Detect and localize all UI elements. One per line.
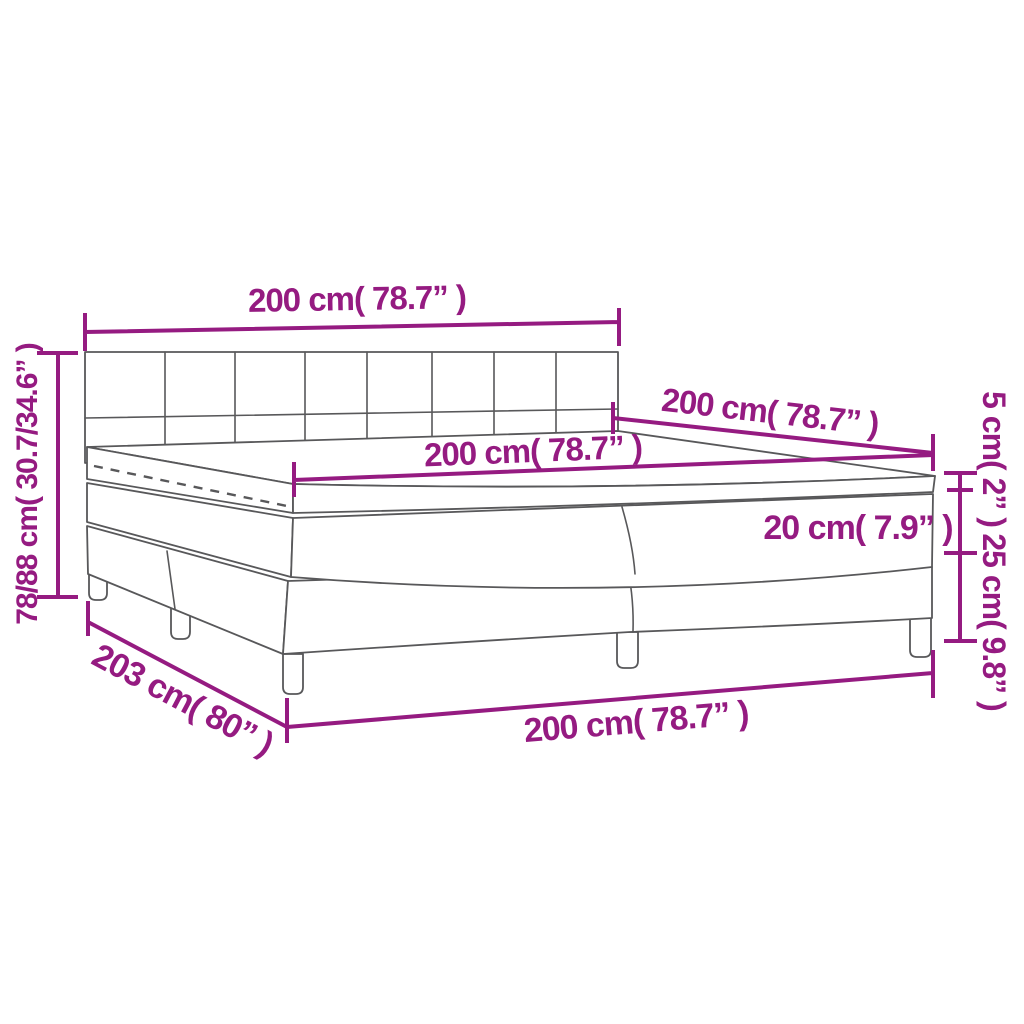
label-headboard-width: 200 cm( 78.7” ) — [248, 278, 467, 319]
label-total-length: 203 cm( 80” ) — [86, 636, 279, 763]
bed-dimension-diagram: 200 cm( 78.7” ) 78/88 cm( 30.7/34.6” ) 2… — [0, 0, 1024, 1024]
bed-leg — [910, 617, 931, 657]
label-mattress-thickness: 20 cm( 7.9” ) — [763, 509, 952, 547]
label-base-height: 25 cm( 9.8” ) — [976, 533, 1012, 711]
label-height-range: 78/88 cm( 30.7/34.6” ) — [11, 343, 44, 625]
label-length-top: 200 cm( 78.7” ) — [660, 381, 881, 442]
label-base-width: 200 cm( 78.7” ) — [522, 694, 749, 750]
bed-leg — [617, 632, 638, 668]
bed-leg — [283, 654, 303, 694]
diagram-canvas: 200 cm( 78.7” ) 78/88 cm( 30.7/34.6” ) 2… — [0, 0, 1024, 1024]
label-topper-thickness: 5 cm( 2” ) — [976, 391, 1012, 527]
dim-layer-stack — [944, 473, 977, 641]
